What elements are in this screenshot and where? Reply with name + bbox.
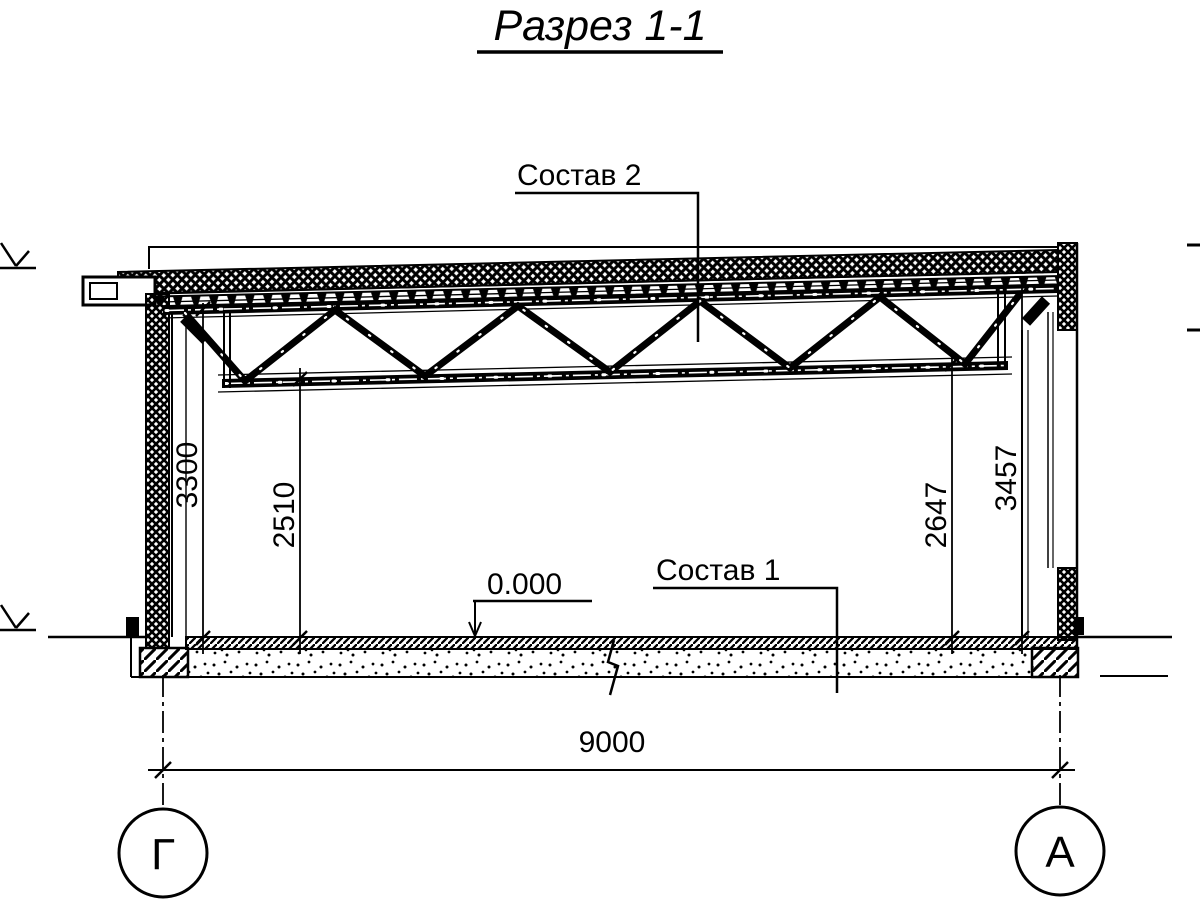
section-drawing: Разрез 1-1	[0, 0, 1200, 900]
level-mark-bottom-left-icon	[0, 605, 36, 630]
truss-right-support-pad	[1026, 300, 1046, 322]
drawing-sheet: Разрез 1-1	[0, 0, 1200, 900]
page-title: Разрез 1-1	[493, 2, 706, 50]
axis-label-left: Г	[151, 830, 175, 879]
left-wall-panel	[146, 294, 169, 648]
dim-right-truss-clearance: 2647	[920, 352, 959, 654]
right-foundation-block	[1032, 648, 1078, 677]
dim-left-wall-height: 3300	[171, 302, 210, 654]
span-dimension: 9000 Г А	[119, 675, 1104, 897]
dim-right-wall-height-value: 3457	[990, 445, 1023, 512]
floor-screed-layer	[186, 637, 1077, 649]
floor-slab	[48, 617, 1172, 695]
left-foundation-block	[140, 648, 188, 677]
right-plinth-ledge	[1074, 617, 1084, 635]
dim-right-wall-height: 3457	[990, 286, 1029, 654]
left-plinth-ledge	[126, 617, 139, 638]
zero-level-value: 0.000	[487, 568, 562, 601]
right-wall	[1022, 243, 1084, 648]
dim-left-truss-clearance: 2510	[268, 368, 307, 654]
dim-left-wall-height-value: 3300	[171, 442, 204, 509]
dim-right-truss-clearance-value: 2647	[920, 482, 953, 549]
span-dimension-value: 9000	[579, 726, 646, 759]
level-mark-top-left-icon	[0, 243, 36, 268]
zero-level-mark: 0.000	[469, 568, 592, 636]
right-parapet-panel	[1058, 243, 1077, 330]
floor-callout-label: Состав 1	[656, 554, 780, 587]
axis-label-right: А	[1045, 828, 1075, 877]
roof-callout-label: Состав 2	[517, 159, 641, 192]
roof-callout: Состав 2	[515, 159, 698, 342]
dim-left-truss-clearance-value: 2510	[268, 482, 301, 549]
eave-gutter-inner	[90, 283, 117, 299]
title-block: Разрез 1-1	[477, 2, 723, 52]
